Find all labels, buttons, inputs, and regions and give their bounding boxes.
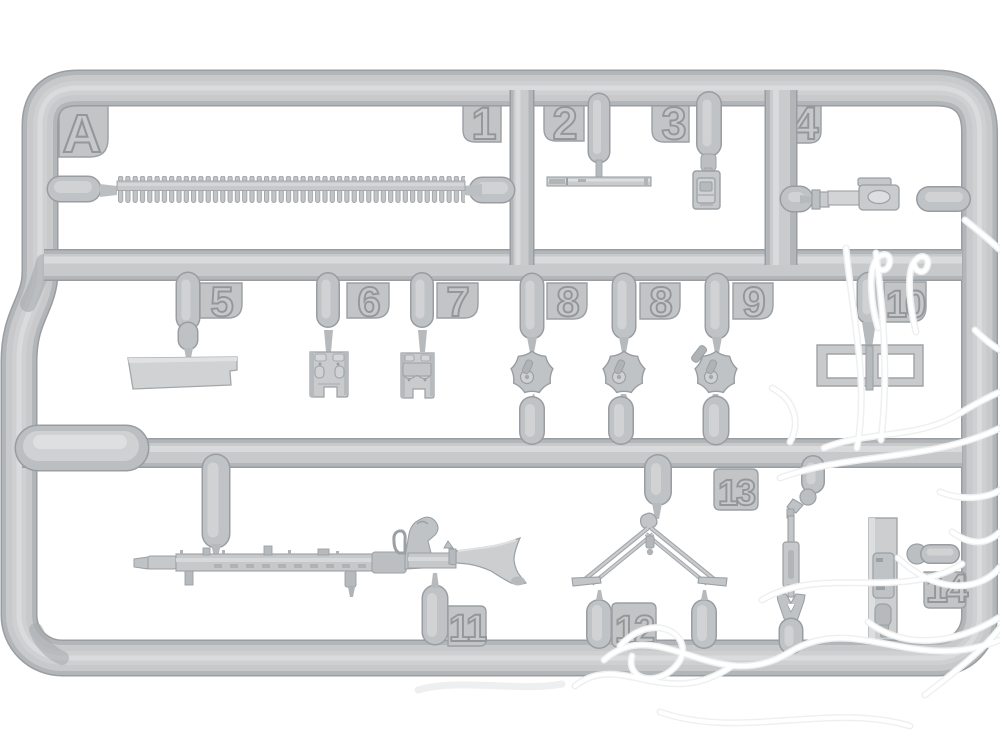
svg-text:5: 5 <box>210 278 233 325</box>
svg-text:10: 10 <box>886 284 925 326</box>
svg-text:11: 11 <box>449 608 487 650</box>
svg-text:6: 6 <box>357 278 380 325</box>
svg-text:7: 7 <box>446 278 469 325</box>
svg-text:A: A <box>63 104 102 164</box>
svg-text:9: 9 <box>742 278 765 325</box>
svg-text:8: 8 <box>556 278 579 325</box>
svg-text:8: 8 <box>649 278 672 325</box>
svg-text:13: 13 <box>718 472 755 513</box>
